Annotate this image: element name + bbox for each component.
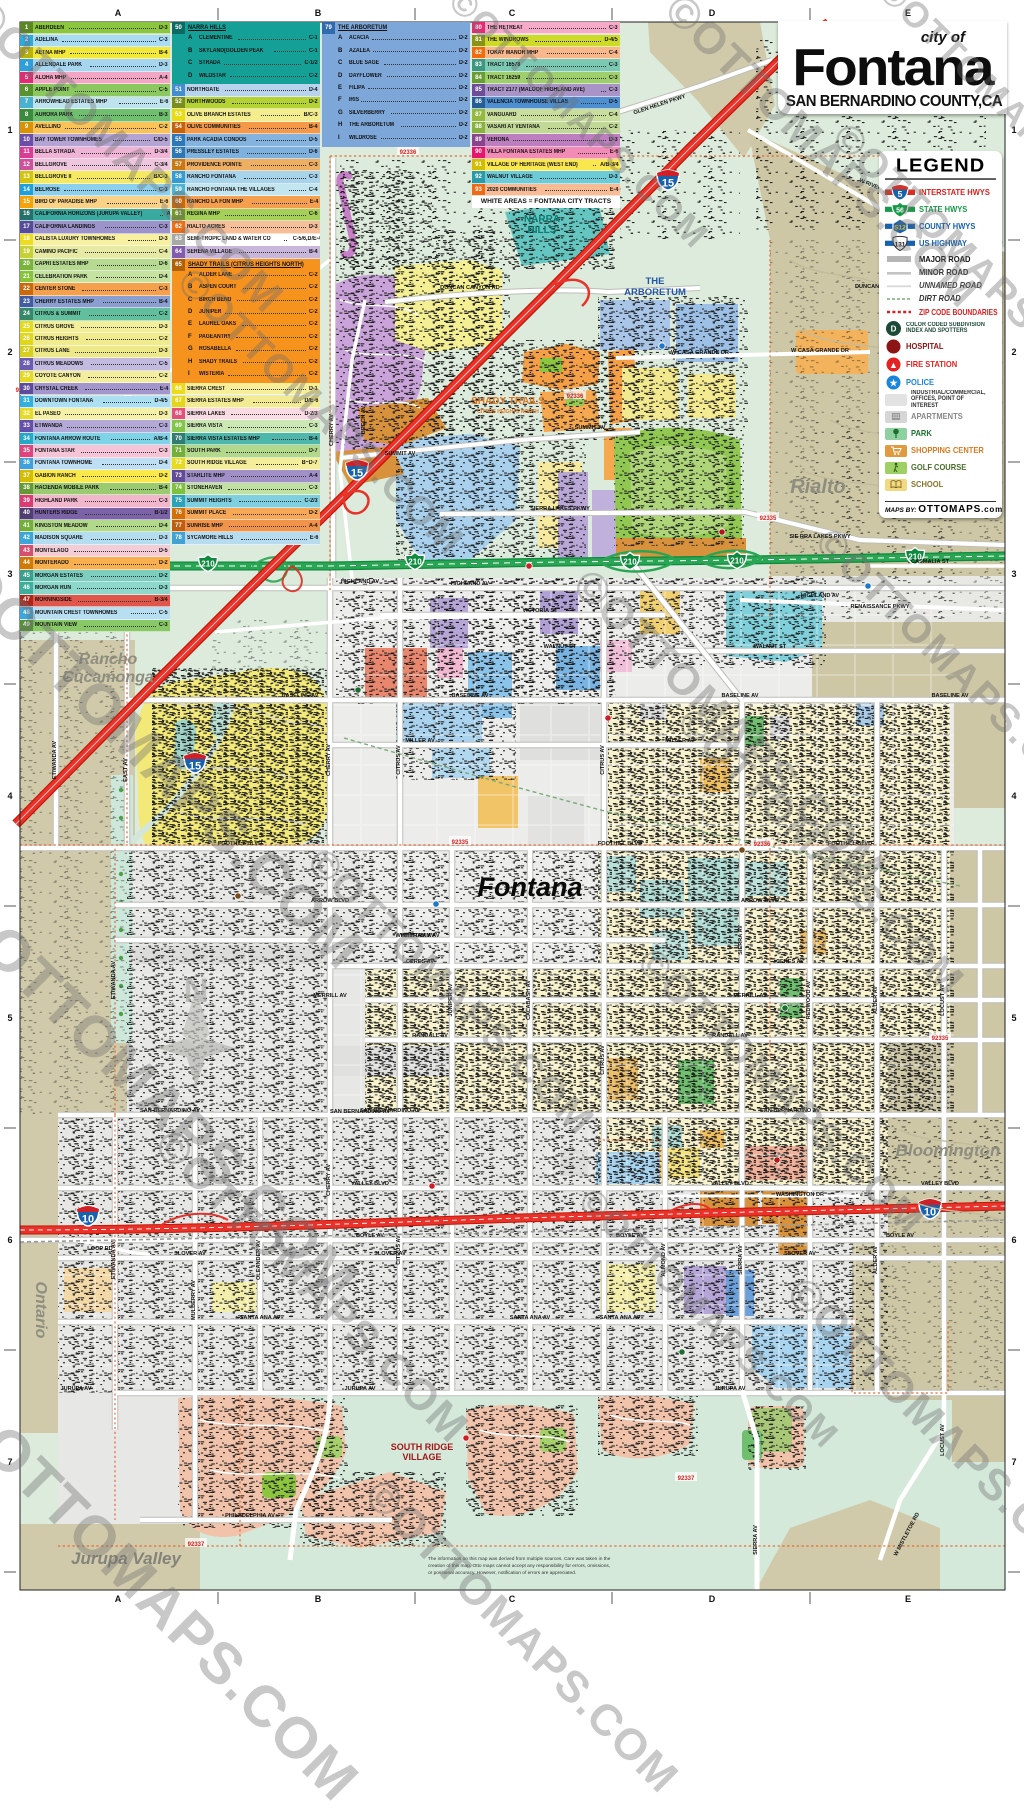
svg-text:OLEANDER AV: OLEANDER AV (256, 1240, 262, 1280)
svg-text:SIERRA LAKES PKWY: SIERRA LAKES PKWY (530, 506, 590, 512)
svg-text:ETIWANDA AV: ETIWANDA AV (111, 961, 117, 1000)
svg-text:LOCUST AV: LOCUST AV (940, 984, 946, 1016)
svg-text:ALMOND AV: ALMOND AV (661, 1243, 667, 1277)
svg-text:E: E (905, 1594, 911, 1604)
svg-text:CHERRY AV: CHERRY AV (329, 414, 335, 446)
svg-text:MERRILL AV: MERRILL AV (313, 993, 347, 999)
svg-text:S12: S12 (894, 225, 906, 232)
svg-text:VALLEY BLVD: VALLEY BLVD (711, 1181, 749, 1187)
svg-text:W CASA GRANDE DR: W CASA GRANDE DR (791, 348, 849, 354)
svg-text:or positional accuracy. Howeve: or positional accuracy. However, notific… (428, 1570, 576, 1576)
svg-text:C: C (509, 1594, 516, 1604)
svg-text:E: E (905, 8, 911, 18)
svg-text:92337: 92337 (188, 1542, 205, 1548)
svg-text:HIGHLAND AV: HIGHLAND AV (801, 593, 839, 599)
svg-text:SAN BERNARDINO AV: SAN BERNARDINO AV (330, 1109, 390, 1115)
svg-text:6: 6 (1011, 1235, 1016, 1245)
svg-text:ETIWANDA AV: ETIWANDA AV (52, 741, 58, 780)
svg-text:The information on this map wa: The information on this map was derived … (428, 1556, 611, 1562)
svg-text:RANDALL AV: RANDALL AV (412, 1033, 448, 1039)
svg-text:SIERRA AV: SIERRA AV (738, 925, 744, 955)
svg-text:Jurupa Valley: Jurupa Valley (71, 1549, 182, 1568)
svg-text:SIERRA AV: SIERRA AV (738, 1245, 744, 1275)
svg-text:JURUPA AV: JURUPA AV (60, 1386, 91, 1392)
svg-text:Rialto: Rialto (790, 476, 846, 498)
svg-text:D: D (709, 1594, 716, 1604)
svg-text:BOYLE AV: BOYLE AV (616, 1233, 644, 1239)
svg-text:VALLEY BLVD: VALLEY BLVD (351, 1181, 389, 1187)
svg-text:BASELINE AV: BASELINE AV (722, 693, 759, 699)
svg-text:CASMALIA ST: CASMALIA ST (911, 559, 950, 565)
svg-text:NARRA: NARRA (524, 214, 560, 225)
svg-text:15: 15 (189, 761, 201, 773)
svg-text:ARROW BLVD: ARROW BLVD (311, 898, 349, 904)
svg-text:A: A (115, 8, 122, 18)
svg-text:DUNCAN CANYON RD: DUNCAN CANYON RD (440, 285, 500, 291)
svg-text:CHERRY AV: CHERRY AV (326, 1164, 332, 1196)
svg-text:1: 1 (1011, 125, 1016, 135)
svg-text:ARROW BLVD: ARROW BLVD (741, 898, 779, 904)
svg-text:2: 2 (7, 347, 12, 357)
svg-text:92337: 92337 (678, 1476, 695, 1482)
svg-text:SIERRA AV: SIERRA AV (753, 1525, 759, 1555)
svg-text:BOYLE AV: BOYLE AV (886, 1233, 914, 1239)
svg-text:CERES AV: CERES AV (776, 959, 804, 965)
svg-text:15: 15 (662, 178, 674, 190)
svg-text:MERRILL AV: MERRILL AV (733, 993, 767, 999)
svg-text:92335: 92335 (932, 1036, 949, 1042)
svg-text:ALDER AV: ALDER AV (873, 986, 879, 1014)
svg-text:Rancho: Rancho (79, 651, 138, 668)
svg-text:THE: THE (646, 276, 665, 287)
svg-text:VALLEY BLVD: VALLEY BLVD (921, 1181, 959, 1187)
svg-text:B: B (315, 8, 322, 18)
svg-text:56: 56 (896, 208, 904, 215)
svg-text:SAN BERNARDINO AV: SAN BERNARDINO AV (760, 1108, 820, 1114)
svg-text:SANTA ANA AV: SANTA ANA AV (600, 1315, 641, 1321)
svg-text:WHITTRAM AV: WHITTRAM AV (395, 933, 434, 939)
svg-text:FOOTHILL BLVD: FOOTHILL BLVD (828, 841, 872, 847)
svg-text:SLOVER AV: SLOVER AV (174, 1251, 206, 1257)
svg-text:SANTA ANA AV: SANTA ANA AV (240, 1315, 281, 1321)
svg-text:Ontario: Ontario (32, 1282, 49, 1339)
svg-text:131: 131 (895, 242, 906, 249)
svg-text:6: 6 (7, 1235, 12, 1245)
svg-text:MILLER AV: MILLER AV (405, 738, 435, 744)
svg-text:B: B (315, 1594, 322, 1604)
svg-text:JURUPA AV: JURUPA AV (344, 1386, 375, 1392)
svg-text:ARBORETUM: ARBORETUM (624, 287, 686, 298)
svg-text:CITRUS HEIGHTS NORTH: CITRUS HEIGHTS NORTH (477, 409, 539, 415)
svg-text:CHERRY AV: CHERRY AV (326, 744, 332, 776)
svg-text:BOYLE AV: BOYLE AV (356, 1233, 384, 1239)
svg-text:A: A (115, 1594, 122, 1604)
svg-text:210: 210 (623, 557, 637, 566)
svg-text:WALNUT ST: WALNUT ST (754, 644, 787, 650)
svg-text:N: N (184, 972, 209, 1010)
svg-text:92335: 92335 (760, 516, 777, 522)
svg-text:BASELINE AV: BASELINE AV (282, 693, 319, 699)
svg-text:5: 5 (1011, 1013, 1016, 1023)
svg-text:LOCUST AV: LOCUST AV (940, 1424, 946, 1456)
svg-text:4: 4 (7, 791, 12, 801)
svg-text:92336: 92336 (567, 394, 584, 400)
svg-text:REDWOOD AV: REDWOOD AV (806, 980, 812, 1019)
svg-text:4: 4 (1011, 791, 1016, 801)
svg-text:CITRUS AV: CITRUS AV (396, 745, 402, 775)
svg-text:CERES AV: CERES AV (406, 959, 434, 965)
svg-text:D: D (709, 8, 716, 18)
svg-text:MULBERRY AV: MULBERRY AV (191, 1280, 197, 1320)
svg-text:C: C (509, 8, 516, 18)
svg-text:FOOTHILL BLVD: FOOTHILL BLVD (218, 841, 262, 847)
svg-text:15: 15 (351, 468, 363, 480)
svg-text:WASHINGTON DR: WASHINGTON DR (776, 1192, 824, 1198)
svg-text:2: 2 (1011, 347, 1016, 357)
svg-text:SANTA ANA AV: SANTA ANA AV (510, 1315, 551, 1321)
svg-text:ALDER AV: ALDER AV (873, 1246, 879, 1274)
svg-text:RANDALL AV: RANDALL AV (712, 1033, 748, 1039)
svg-text:HIGHLAND AV: HIGHLAND AV (341, 579, 379, 585)
svg-text:3: 3 (7, 569, 12, 579)
svg-text:CALABASH AV: CALABASH AV (526, 980, 532, 1020)
svg-text:FOOTHILL BLVD: FOOTHILL BLVD (598, 841, 642, 847)
svg-text:7: 7 (7, 1457, 12, 1467)
svg-text:SLOVER AV: SLOVER AV (784, 1251, 816, 1257)
svg-text:JURUPA AV: JURUPA AV (714, 1386, 745, 1392)
svg-text:CITRUS AV: CITRUS AV (396, 1235, 402, 1265)
svg-text:Cucamonga: Cucamonga (62, 669, 154, 686)
svg-text:HILLS: HILLS (528, 225, 557, 236)
svg-text:SHADY TRAILS: SHADY TRAILS (471, 396, 545, 407)
svg-text:210: 210 (201, 559, 215, 568)
svg-text:CITRUS AV: CITRUS AV (600, 1045, 606, 1075)
svg-text:LOOP RD: LOOP RD (87, 1246, 112, 1252)
svg-text:1: 1 (7, 125, 12, 135)
svg-text:Fontana: Fontana (478, 872, 583, 902)
svg-text:3: 3 (1011, 569, 1016, 579)
svg-text:PHILADELPHIA AV: PHILADELPHIA AV (225, 1513, 275, 1519)
svg-text:5: 5 (7, 1013, 12, 1023)
svg-text:92335: 92335 (452, 840, 469, 846)
svg-text:RENAISSANCE PKWY: RENAISSANCE PKWY (850, 604, 909, 610)
svg-text:5: 5 (898, 189, 903, 199)
svg-text:210: 210 (408, 557, 422, 566)
svg-text:JUNIPER AV: JUNIPER AV (448, 983, 454, 1016)
svg-text:7: 7 (1011, 1457, 1016, 1467)
svg-text:D: D (891, 324, 897, 333)
svg-text:HIGHLAND AV: HIGHLAND AV (451, 581, 489, 587)
svg-text:MILLER AV: MILLER AV (665, 738, 695, 744)
svg-text:BEECH AV: BEECH AV (361, 406, 367, 435)
svg-text:Bloomington: Bloomington (896, 1141, 1001, 1160)
svg-text:SUMMIT AV: SUMMIT AV (385, 451, 416, 457)
svg-text:W CASA GRANDE DR: W CASA GRANDE DR (671, 350, 729, 356)
svg-text:SIE RRA LAKES PKWY: SIE RRA LAKES PKWY (789, 534, 851, 540)
svg-text:SOUTH RIDGE: SOUTH RIDGE (391, 1442, 454, 1452)
svg-text:WALNUT ST: WALNUT ST (544, 644, 577, 650)
svg-text:creation of this map. Otto map: creation of this map. Otto maps cannot a… (428, 1563, 610, 1569)
svg-text:SUMMIT AV: SUMMIT AV (575, 425, 606, 431)
svg-text:VICTORIA ST: VICTORIA ST (522, 608, 558, 614)
svg-text:CITRUS AV: CITRUS AV (600, 745, 606, 775)
svg-text:ETIWANDA AV: ETIWANDA AV (111, 1241, 117, 1280)
svg-text:BASELINE AV: BASELINE AV (452, 693, 489, 699)
svg-text:VILLAGE: VILLAGE (402, 1452, 441, 1462)
svg-text:▲: ▲ (889, 359, 898, 369)
svg-text:SAN BERNARDINO AV: SAN BERNARDINO AV (140, 1108, 200, 1114)
svg-text:92336: 92336 (400, 150, 417, 156)
svg-text:★: ★ (889, 377, 898, 387)
svg-text:210: 210 (730, 556, 744, 565)
svg-text:10: 10 (82, 1214, 94, 1226)
svg-text:H: H (890, 341, 897, 351)
svg-text:BASELINE AV: BASELINE AV (932, 693, 969, 699)
svg-text:EAST AV: EAST AV (123, 758, 129, 782)
svg-text:92336: 92336 (754, 842, 771, 848)
